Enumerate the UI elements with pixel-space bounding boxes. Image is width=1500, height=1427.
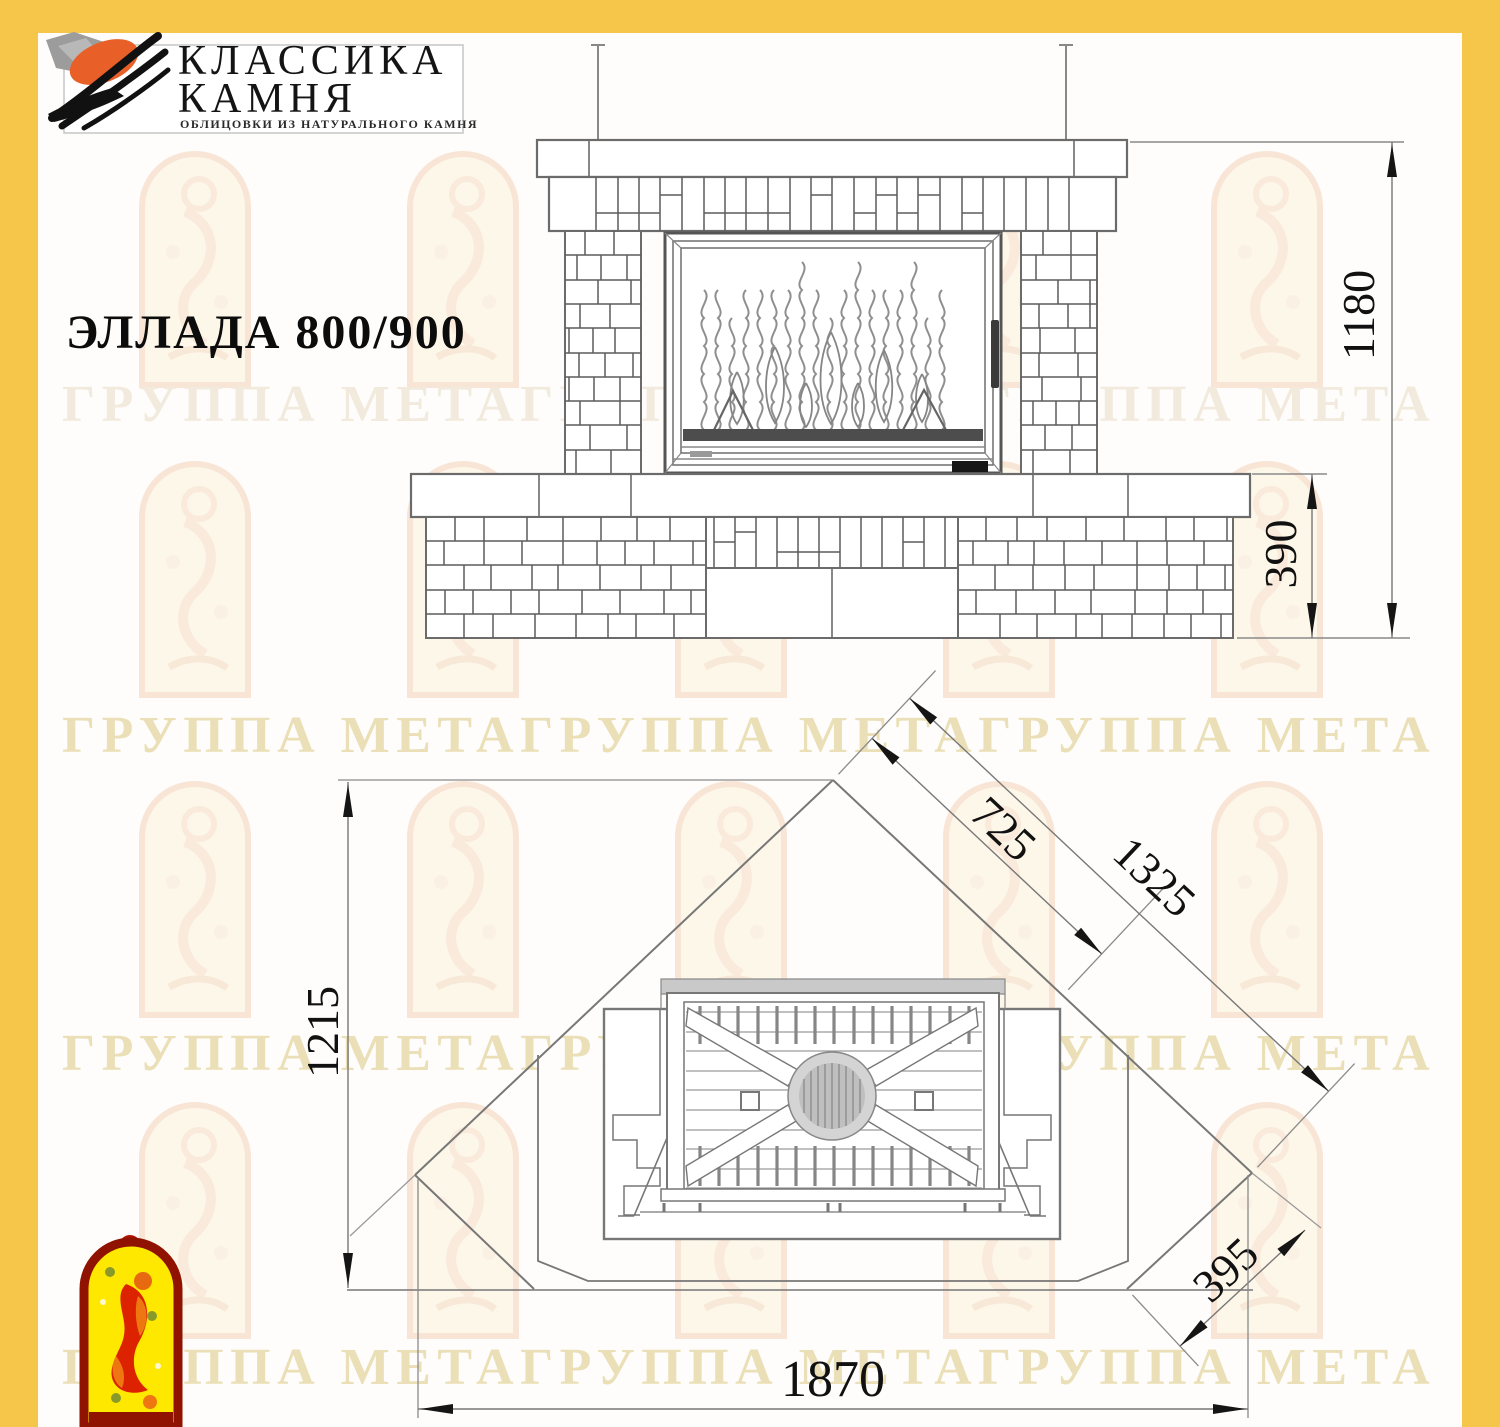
svg-text:ОБЛИЦОВКИ ИЗ НАТУРАЛЬНОГО КАМН: ОБЛИЦОВКИ ИЗ НАТУРАЛЬНОГО КАМНЯ [180,117,478,131]
svg-text:ЭЛЛАДА 800/900: ЭЛЛАДА 800/900 [66,306,467,359]
svg-text:ГРУППА МЕТАГРУППА МЕТАГРУППА М: ГРУППА МЕТАГРУППА МЕТАГРУППА МЕТА [62,1339,1436,1396]
svg-text:КАМНЯ: КАМНЯ [178,76,357,122]
svg-text:1215: 1215 [297,986,348,1078]
svg-text:390: 390 [1255,520,1306,589]
svg-text:1180: 1180 [1333,270,1384,360]
svg-text:ГРУППА МЕТАГРУППА МЕТАГРУППА М: ГРУППА МЕТАГРУППА МЕТАГРУППА МЕТА [62,707,1436,764]
svg-text:1870: 1870 [781,1351,885,1408]
